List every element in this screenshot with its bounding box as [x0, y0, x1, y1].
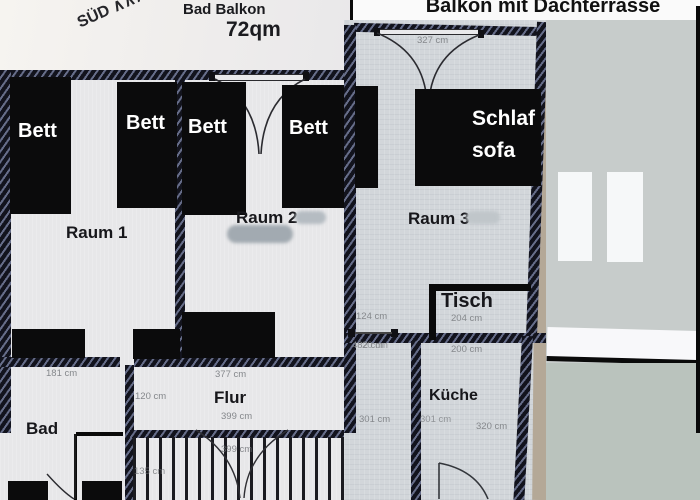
- sofa-label-line2: sofa: [472, 139, 515, 163]
- bed-4-label: Bett: [289, 117, 328, 140]
- measurement-181: 181 cm: [46, 368, 77, 379]
- bed-2: Bett: [117, 82, 177, 208]
- room1-label: Raum 1: [66, 223, 127, 243]
- measurement-327: 327 cm: [417, 35, 448, 46]
- page-edge-line: [696, 6, 700, 433]
- kueche-label: Küche: [429, 387, 478, 405]
- gray-panel-lower: [546, 363, 700, 500]
- door-swing-symbol: [45, 434, 77, 500]
- bed-1: Bett: [10, 77, 71, 214]
- room3-label: Raum 3: [408, 209, 469, 229]
- measurement-377: 377 cm: [215, 369, 246, 380]
- bad-balkon-label: Bad Balkon: [183, 1, 266, 18]
- redaction-blur: [295, 211, 326, 224]
- measurement-135: 135 cm: [134, 466, 165, 477]
- white-bar: [558, 172, 592, 261]
- redaction-blur: [227, 225, 293, 243]
- wardrobe: [12, 329, 85, 358]
- measurement-200: 200 cm: [451, 344, 482, 355]
- white-strip: [547, 327, 698, 365]
- tisch-label: Tisch: [441, 290, 493, 313]
- sleeper-sofa: Schlaf sofa: [415, 89, 541, 186]
- measurement-120: 120 cm: [135, 391, 166, 402]
- measurement-399b: 399 cm: [221, 444, 252, 455]
- bed-2-label: Bett: [126, 112, 165, 135]
- sliding-door-line: [355, 332, 392, 334]
- door-post: [348, 329, 355, 337]
- bath-partition: [76, 432, 123, 436]
- measurement-320: 320 cm: [476, 421, 507, 432]
- bed-3-label: Bett: [188, 116, 227, 139]
- bed-4: Bett: [282, 85, 345, 208]
- measurement-420: 20 cm: [362, 340, 388, 351]
- sofa-label-line1: Schlaf: [472, 107, 535, 131]
- bath-fixture: [8, 481, 48, 500]
- door-post: [391, 329, 398, 337]
- tisch-wall-left: [429, 284, 436, 340]
- measurement-301a: 301 cm: [359, 414, 390, 425]
- flur-label: Flur: [214, 388, 246, 408]
- left-photo-top-margin: [0, 0, 352, 72]
- right-photo-title: Balkon mit Dachterrasse: [418, 0, 668, 18]
- shelf: [355, 86, 378, 188]
- measurement-399a: 399 cm: [221, 411, 252, 422]
- wardrobe: [182, 312, 275, 358]
- wardrobe: [133, 329, 180, 359]
- measurement-204: 204 cm: [451, 313, 482, 324]
- bed-1-label: Bett: [18, 120, 57, 143]
- door-swing-symbol: [438, 462, 490, 500]
- redaction-blur: [466, 211, 500, 224]
- door-swing-symbol: [195, 429, 289, 500]
- measurement-301b: 301 cm: [420, 414, 451, 425]
- wall-bad-top: [0, 357, 120, 367]
- bath-fixture: [82, 481, 122, 500]
- area-label: 72qm: [226, 18, 281, 42]
- floor-plan-collage: SÜD ∧∧∧WEST Bad Balkon 72qm Bett Bett Be…: [0, 0, 700, 500]
- bed-3: Bett: [182, 82, 246, 215]
- white-bar: [607, 172, 643, 262]
- measurement-124: 124 cm: [356, 311, 387, 322]
